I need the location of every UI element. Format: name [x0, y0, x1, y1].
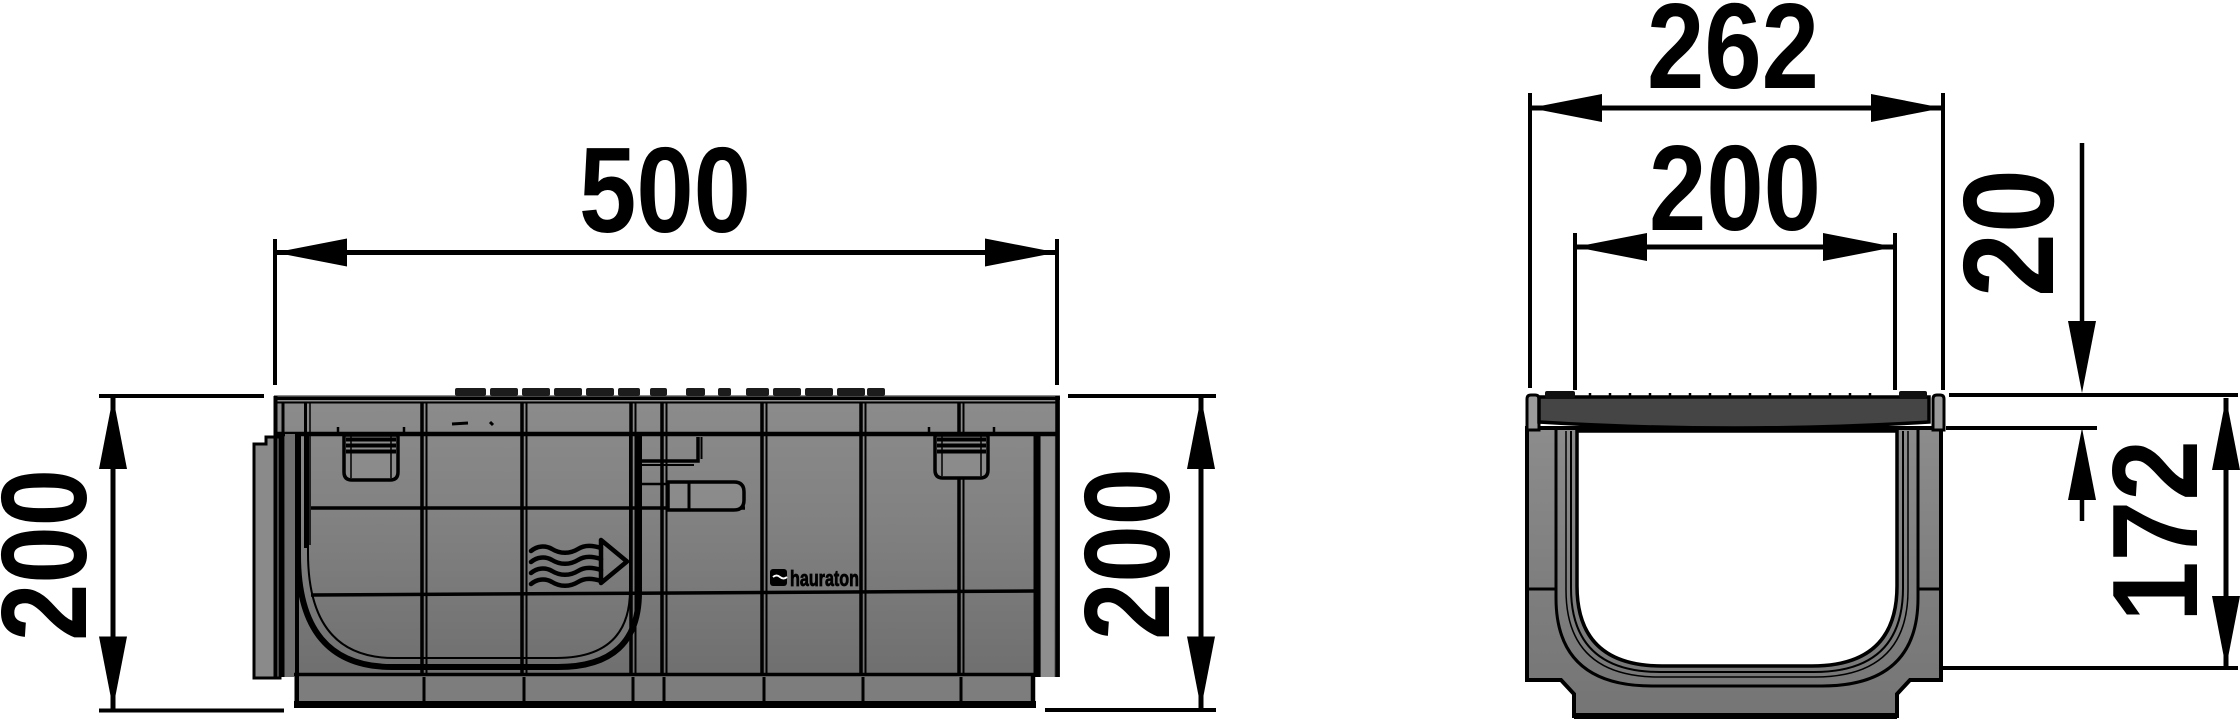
svg-text:200: 200	[1649, 120, 1821, 256]
svg-text:hauraton: hauraton	[790, 566, 859, 591]
svg-text:200: 200	[1059, 468, 1195, 640]
svg-text:200: 200	[0, 469, 112, 641]
svg-text:20: 20	[1937, 169, 2081, 297]
svg-text:262: 262	[1647, 0, 1819, 114]
svg-text:172: 172	[2087, 440, 2223, 622]
svg-text:500: 500	[579, 122, 751, 258]
